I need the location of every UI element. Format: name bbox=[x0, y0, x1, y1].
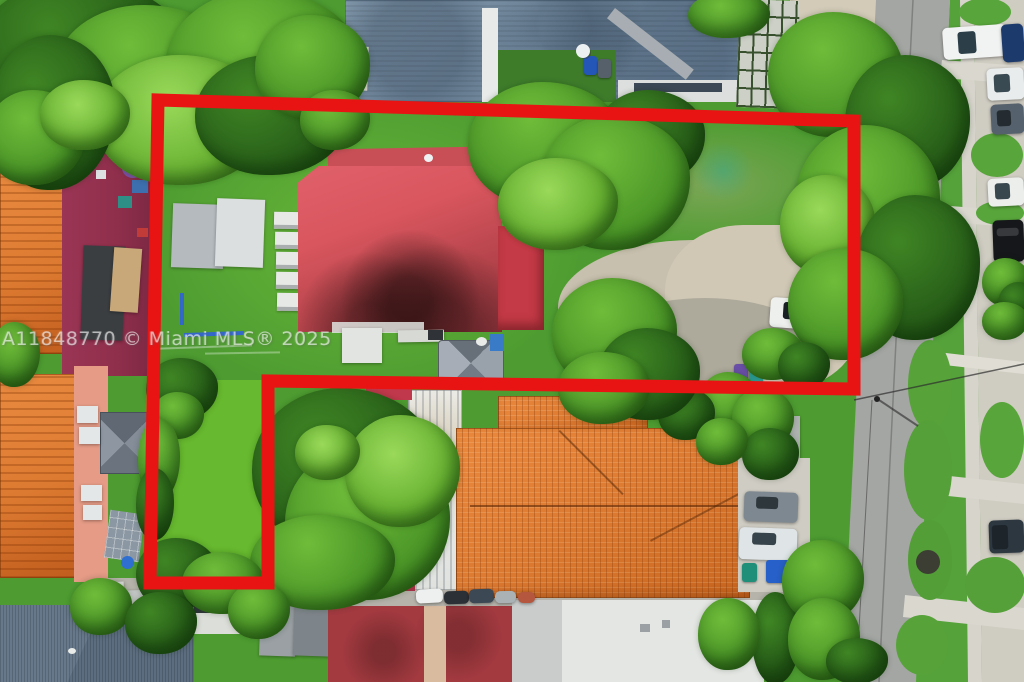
street-car-silver bbox=[986, 67, 1024, 101]
car-windshield bbox=[997, 110, 1012, 127]
street-car-white bbox=[987, 177, 1024, 207]
tree bbox=[125, 592, 197, 654]
trash-bin-gray bbox=[598, 59, 611, 78]
clothesline-pole bbox=[180, 293, 184, 325]
tarp-blue bbox=[490, 334, 504, 351]
palm-tree bbox=[742, 428, 799, 480]
satellite-dish bbox=[576, 44, 590, 58]
street-car-navy bbox=[1001, 23, 1024, 62]
alley-car-white bbox=[416, 588, 444, 603]
courtyard-boxes bbox=[110, 247, 142, 313]
garden-shed-white bbox=[342, 328, 382, 363]
tree bbox=[40, 80, 130, 150]
shrub bbox=[778, 342, 830, 389]
alley-car-red bbox=[518, 592, 535, 603]
driveway-suv-gray bbox=[743, 491, 798, 523]
ac-unit bbox=[81, 485, 102, 501]
pool-toy-blue bbox=[121, 556, 134, 569]
car-windshield bbox=[993, 74, 1010, 93]
roof-vent-white bbox=[68, 648, 76, 654]
street-car-black bbox=[992, 219, 1024, 262]
car-windshield bbox=[756, 496, 778, 509]
aerial-property-photo: A11848770 © Miami MLS® 2025 bbox=[0, 0, 1024, 682]
street-car-white bbox=[942, 24, 1008, 60]
shrub bbox=[136, 468, 174, 540]
courtyard-item-teal bbox=[118, 196, 132, 208]
tree bbox=[300, 90, 370, 150]
street-pickup-dark bbox=[988, 519, 1024, 553]
car-windshield bbox=[957, 31, 976, 54]
recycle-bin-blue bbox=[584, 56, 597, 75]
street-suv-gray bbox=[990, 103, 1024, 135]
palm-tree bbox=[826, 638, 888, 682]
ac-unit bbox=[79, 427, 100, 444]
car-windshield bbox=[752, 532, 776, 545]
alley-car-dark bbox=[444, 591, 469, 605]
s-white-roof-section bbox=[512, 600, 562, 682]
roof-ridge bbox=[470, 505, 740, 507]
back-door-step bbox=[428, 330, 443, 340]
pickup-bed bbox=[992, 525, 1009, 550]
palm-tree bbox=[698, 598, 760, 670]
alley-car-gray bbox=[495, 591, 516, 603]
s-maroon-roof-ridge bbox=[424, 606, 446, 682]
round-object-white bbox=[476, 337, 487, 346]
tree bbox=[558, 352, 650, 424]
s-maroon-roof bbox=[328, 606, 514, 682]
ac-unit bbox=[77, 406, 98, 423]
tree bbox=[228, 582, 290, 639]
storage-shed-white bbox=[215, 198, 265, 268]
tree bbox=[295, 425, 360, 480]
chimney-vent bbox=[424, 154, 433, 162]
courtyard-item-blue bbox=[132, 180, 148, 193]
rooftop-ac bbox=[640, 624, 650, 632]
palm-tree bbox=[982, 302, 1024, 340]
tree bbox=[498, 158, 618, 250]
car-windshield bbox=[995, 183, 1011, 200]
ac-unit bbox=[83, 505, 102, 520]
courtyard-item-red bbox=[137, 228, 148, 237]
west-orange-roof-south bbox=[0, 374, 78, 578]
trash-bin-green bbox=[742, 563, 757, 582]
tree bbox=[345, 415, 460, 527]
rooftop-ac bbox=[662, 620, 670, 628]
north-house-wall-band bbox=[482, 8, 498, 102]
alley-car-slate bbox=[469, 589, 494, 604]
tree bbox=[70, 578, 132, 635]
car-roof-highlight bbox=[997, 228, 1019, 237]
main-house-roof bbox=[298, 166, 502, 332]
west-house-wall-pink bbox=[74, 366, 108, 582]
mls-watermark: A11848770 © Miami MLS® 2025 bbox=[2, 328, 332, 350]
palm-tree bbox=[696, 418, 748, 465]
courtyard-item-white bbox=[96, 170, 106, 179]
